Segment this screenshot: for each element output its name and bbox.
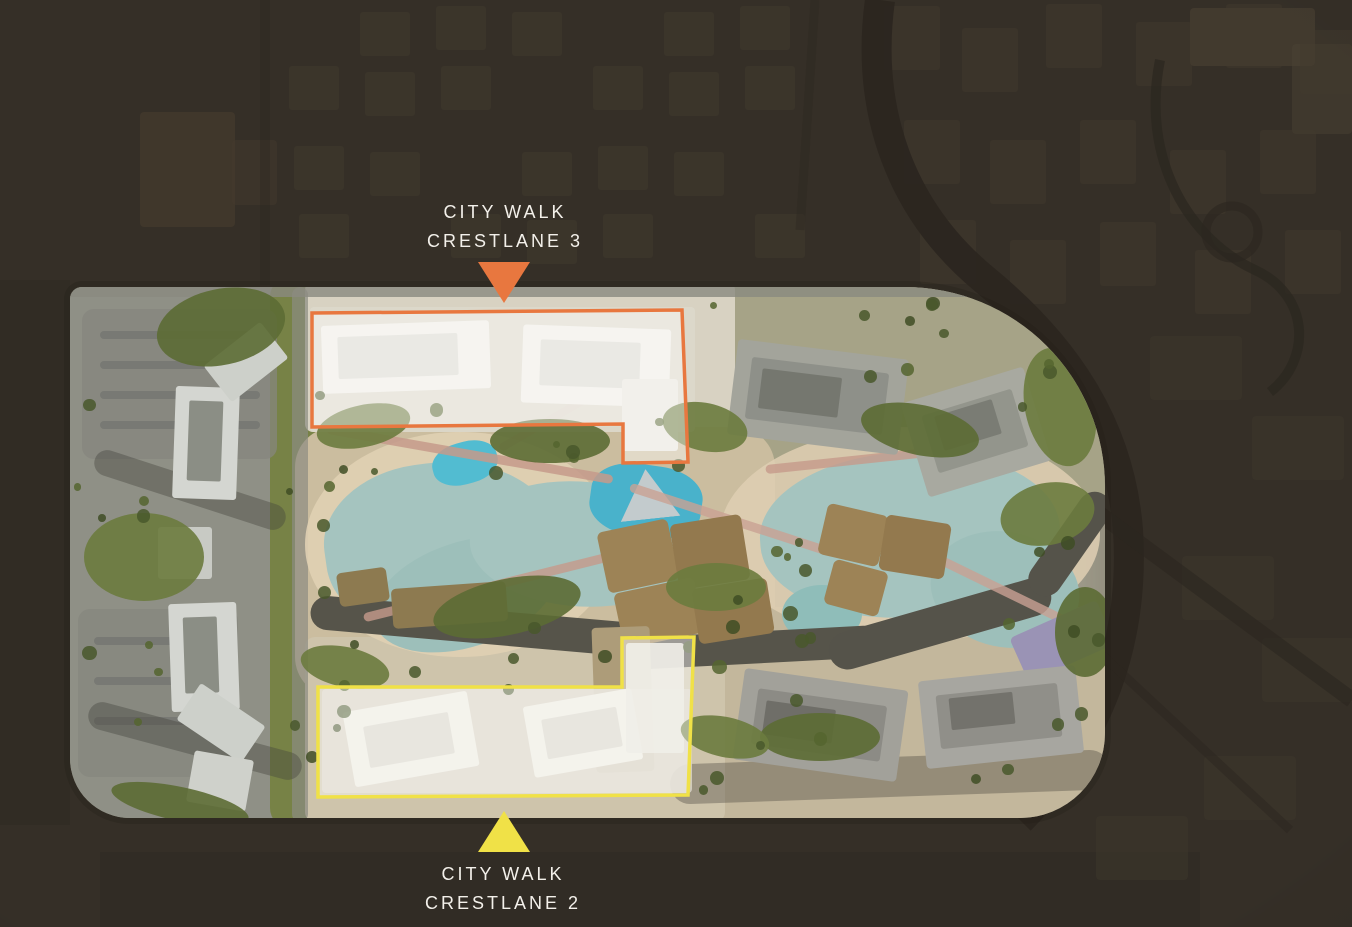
street	[800, 0, 815, 230]
tree	[137, 509, 151, 523]
tree	[1078, 372, 1086, 380]
tree	[901, 363, 913, 375]
tree	[756, 741, 765, 750]
tree	[317, 519, 330, 532]
tree	[795, 538, 804, 547]
tree	[306, 751, 318, 763]
crestlane2-pointer-icon	[478, 811, 530, 852]
tree	[784, 553, 792, 561]
boardwalk-building	[336, 567, 390, 608]
tree	[699, 785, 709, 795]
tree	[145, 641, 153, 649]
tree	[1052, 718, 1065, 731]
tree	[489, 466, 503, 480]
tree	[566, 445, 579, 458]
tree	[83, 399, 95, 411]
tree	[790, 694, 803, 707]
tree	[799, 564, 812, 577]
map-decor-patch	[337, 333, 458, 379]
crestlane2-label-line1: CITY WALK	[353, 860, 653, 889]
tree	[337, 705, 350, 718]
tree	[324, 481, 335, 492]
tree	[339, 680, 350, 691]
tree	[1034, 547, 1044, 557]
site-landscape	[70, 287, 1105, 818]
roundabout	[1206, 206, 1258, 258]
tree	[598, 650, 612, 664]
tree	[783, 606, 798, 621]
masterplan-image: CITY WALK CRESTLANE 3 CITY WALK CRESTLAN…	[0, 0, 1352, 927]
tree	[350, 640, 359, 649]
crestlane3-label: CITY WALK CRESTLANE 3	[355, 198, 655, 256]
tree	[726, 620, 740, 634]
tree	[859, 310, 870, 321]
tree	[1068, 625, 1080, 637]
tree	[333, 724, 341, 732]
crestlane3-label-line2: CRESTLANE 3	[355, 227, 655, 256]
tree	[82, 646, 96, 660]
map-decor-patch	[183, 616, 220, 693]
development-site-aerial	[70, 287, 1105, 818]
tree	[1075, 707, 1088, 720]
tree	[1092, 633, 1105, 647]
lawn	[84, 513, 204, 601]
tree	[503, 684, 514, 695]
tree	[672, 459, 685, 472]
side-road	[1156, 60, 1300, 392]
tree	[926, 299, 938, 311]
solar-roof	[949, 692, 1016, 731]
crestlane3-pointer-icon	[478, 262, 530, 303]
tree	[74, 483, 81, 490]
tree	[1003, 618, 1015, 630]
tree	[154, 668, 162, 676]
lawn	[490, 419, 610, 463]
tree	[683, 641, 695, 653]
tree	[905, 316, 915, 326]
map-decor-patch	[187, 400, 224, 481]
lawn	[666, 563, 766, 611]
crestlane3-label-line1: CITY WALK	[355, 198, 655, 227]
tree	[1002, 764, 1013, 775]
canal-building-roof	[878, 514, 952, 580]
crestlane2-label-line2: CRESTLANE 2	[353, 889, 653, 918]
tree	[771, 546, 783, 558]
crestlane2-terraces	[626, 643, 684, 753]
tree	[1078, 329, 1089, 340]
tree	[712, 660, 727, 675]
tree	[98, 514, 106, 522]
tree	[1018, 402, 1027, 411]
tree	[139, 496, 149, 506]
tree	[814, 732, 827, 745]
crestlane2-label: CITY WALK CRESTLANE 2	[353, 860, 653, 918]
